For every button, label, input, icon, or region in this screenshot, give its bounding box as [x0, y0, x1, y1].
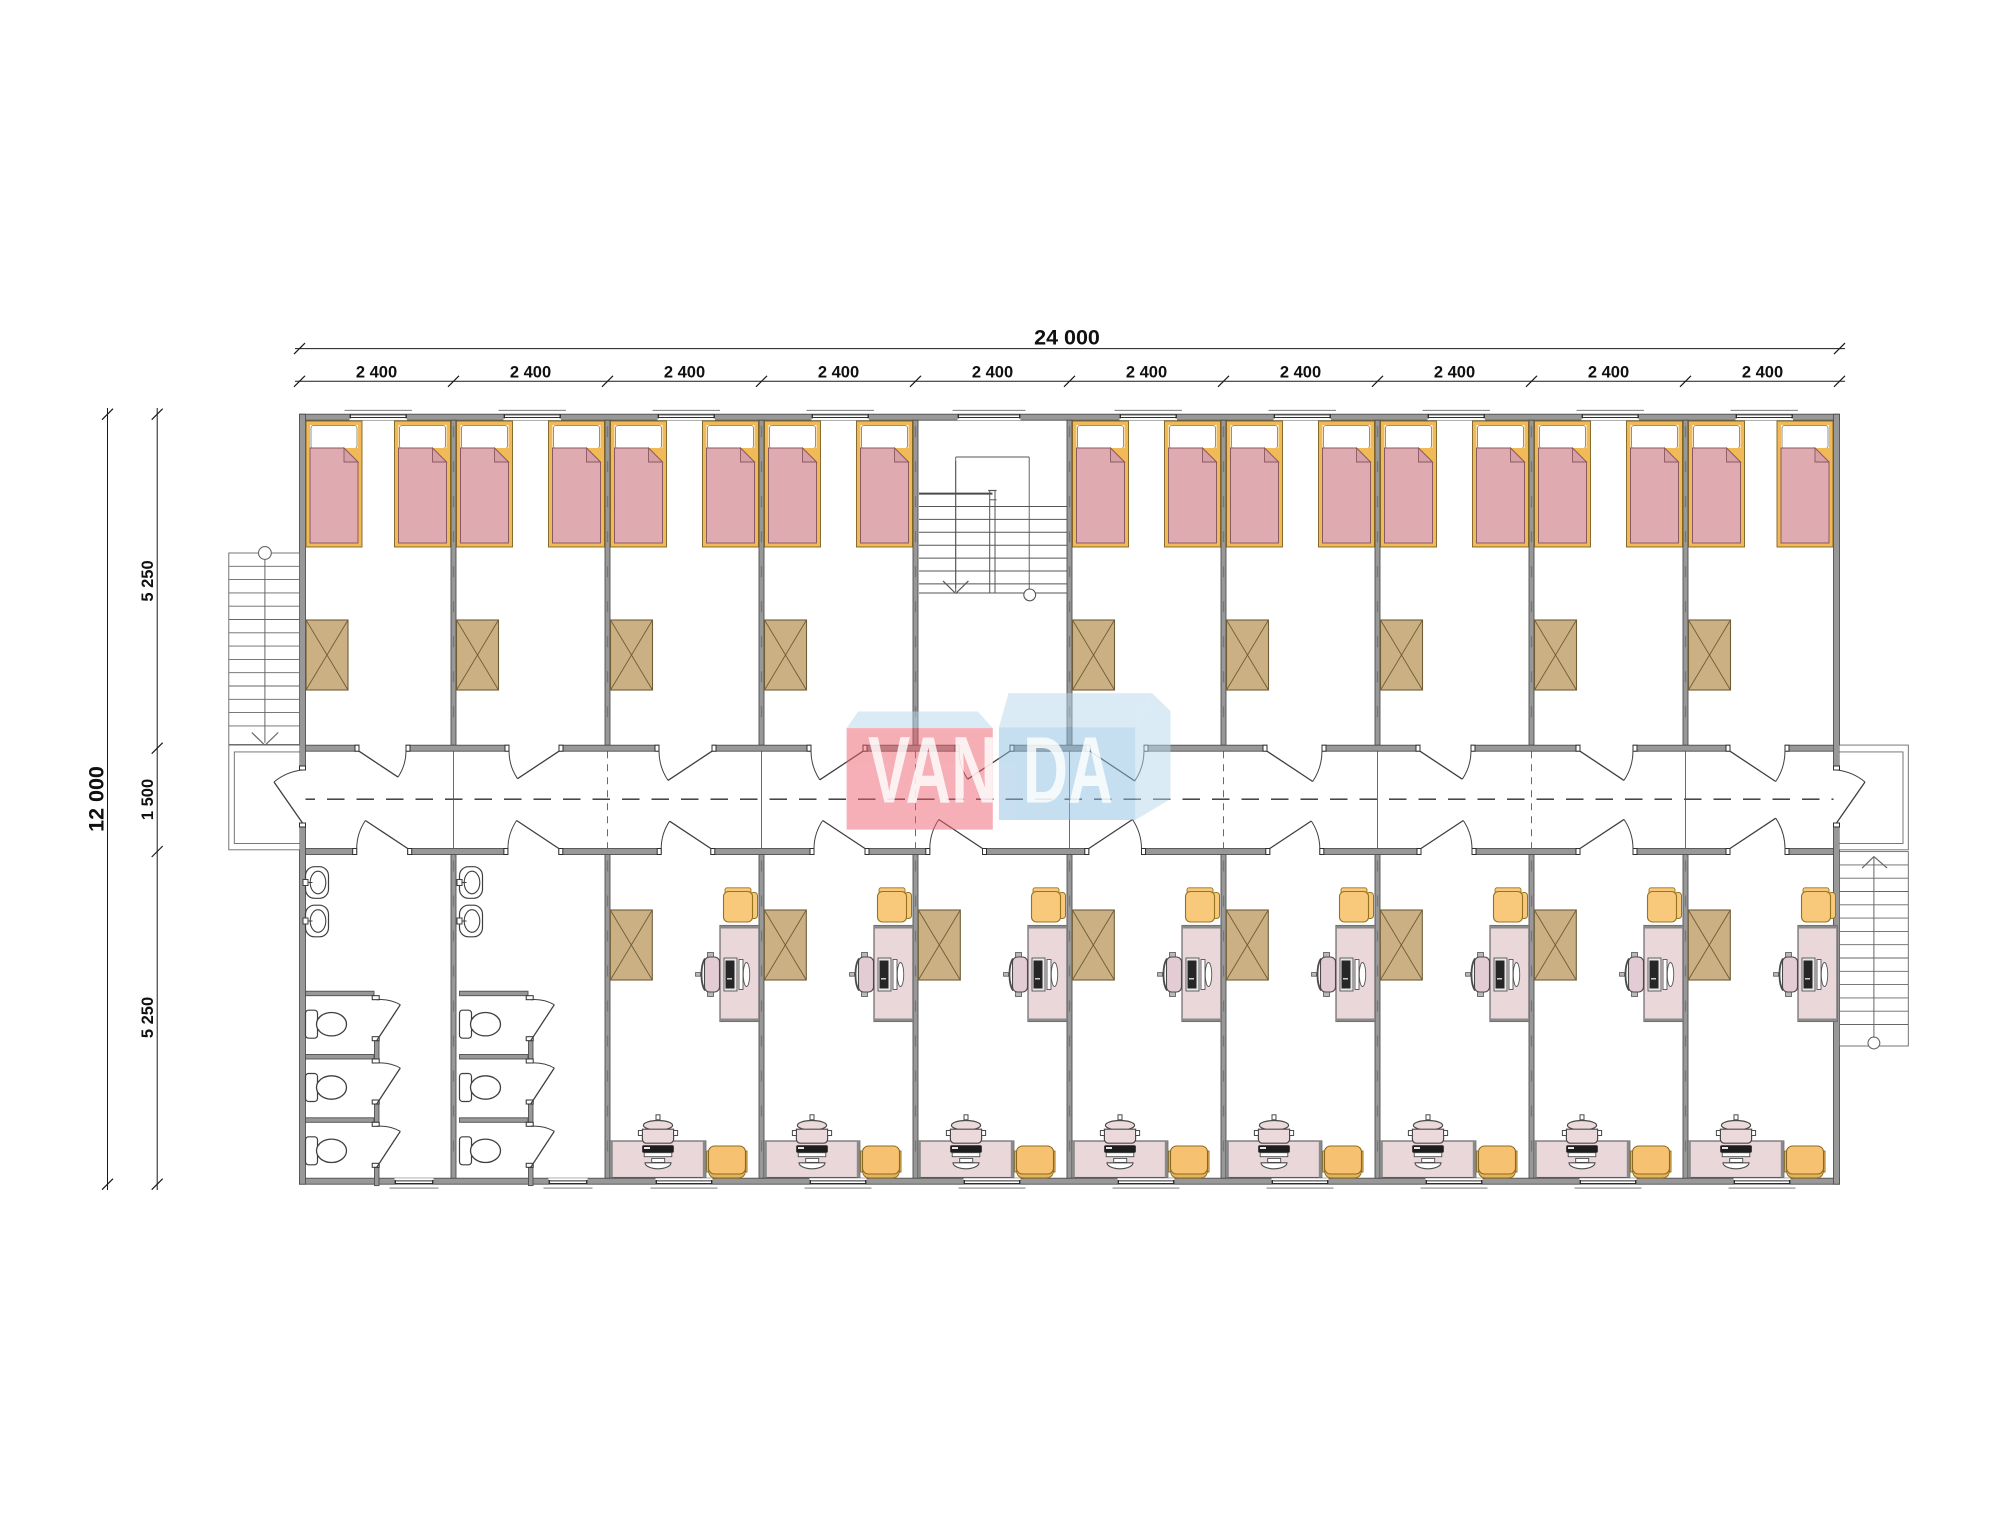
svg-text:12 000: 12 000: [85, 766, 109, 832]
svg-text:2 400: 2 400: [818, 364, 859, 382]
svg-text:24 000: 24 000: [1034, 326, 1100, 350]
svg-text:2 400: 2 400: [972, 364, 1013, 382]
svg-text:2 400: 2 400: [1434, 364, 1475, 382]
svg-text:2 400: 2 400: [356, 364, 397, 382]
svg-text:VAN: VAN: [868, 718, 997, 824]
svg-text:1 500: 1 500: [139, 779, 157, 820]
svg-text:2 400: 2 400: [1742, 364, 1783, 382]
svg-text:2 400: 2 400: [510, 364, 551, 382]
svg-text:5 250: 5 250: [139, 560, 157, 601]
svg-text:2 400: 2 400: [1588, 364, 1629, 382]
svg-text:2 400: 2 400: [1126, 364, 1167, 382]
svg-text:DA: DA: [1023, 718, 1113, 824]
svg-text:2 400: 2 400: [664, 364, 705, 382]
svg-text:2 400: 2 400: [1280, 364, 1321, 382]
svg-text:5 250: 5 250: [139, 997, 157, 1038]
